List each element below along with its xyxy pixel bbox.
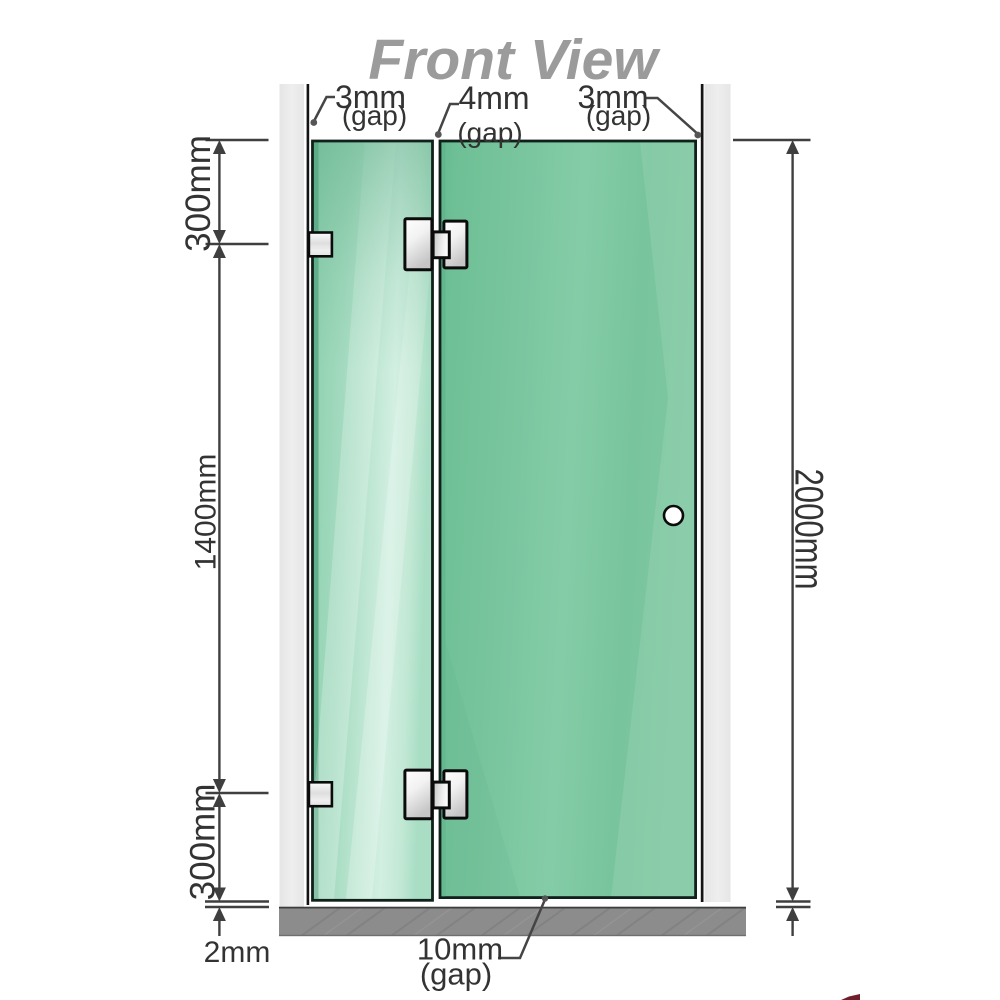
svg-text:2000mm: 2000mm xyxy=(787,469,831,590)
svg-text:(gap): (gap) xyxy=(586,100,651,131)
svg-text:2mm: 2mm xyxy=(204,936,271,969)
svg-text:300mm: 300mm xyxy=(179,135,218,252)
svg-text:1400mm: 1400mm xyxy=(190,454,223,571)
svg-text:(gap): (gap) xyxy=(420,957,492,992)
svg-text:300mm: 300mm xyxy=(184,784,223,901)
svg-text:(gap): (gap) xyxy=(342,100,407,131)
svg-text:(gap): (gap) xyxy=(457,117,522,148)
svg-text:4mm: 4mm xyxy=(458,80,529,116)
